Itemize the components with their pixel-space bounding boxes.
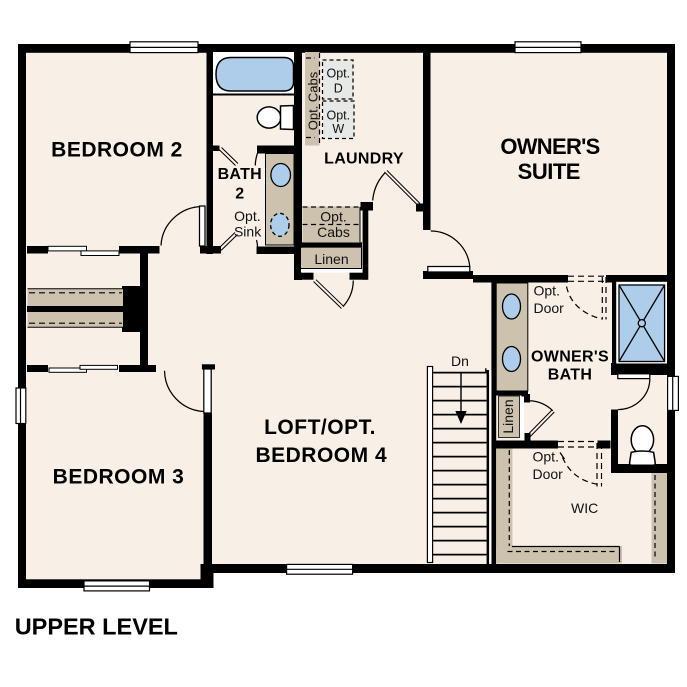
svg-text:BEDROOM 4: BEDROOM 4 xyxy=(255,444,387,467)
svg-text:UPPER LEVEL: UPPER LEVEL xyxy=(15,613,178,639)
svg-text:SUITE: SUITE xyxy=(518,159,580,184)
svg-text:OWNER'S: OWNER'S xyxy=(500,134,599,159)
svg-text:Opt. Cabs: Opt. Cabs xyxy=(306,71,321,130)
svg-text:D: D xyxy=(334,82,343,96)
svg-text:W: W xyxy=(332,122,344,136)
svg-text:LAUNDRY: LAUNDRY xyxy=(324,151,404,168)
svg-text:Door: Door xyxy=(533,466,564,482)
svg-text:Opt.: Opt. xyxy=(326,67,350,81)
svg-text:Door: Door xyxy=(534,300,565,316)
svg-text:BATH: BATH xyxy=(548,367,592,384)
svg-text:BEDROOM 2: BEDROOM 2 xyxy=(51,139,183,162)
svg-text:BATH: BATH xyxy=(218,166,262,183)
svg-text:Linen: Linen xyxy=(314,251,348,267)
svg-text:2: 2 xyxy=(235,186,244,203)
svg-text:Opt.: Opt. xyxy=(234,208,260,224)
svg-text:Opt.: Opt. xyxy=(534,283,560,299)
svg-text:Opt.: Opt. xyxy=(320,209,346,225)
svg-text:Cabs: Cabs xyxy=(317,224,350,240)
svg-text:Sink: Sink xyxy=(234,223,262,239)
svg-text:Linen: Linen xyxy=(500,399,516,433)
svg-text:OWNER'S: OWNER'S xyxy=(531,349,609,366)
svg-text:WIC: WIC xyxy=(571,500,598,516)
svg-text:Dn: Dn xyxy=(451,353,469,369)
svg-text:BEDROOM 3: BEDROOM 3 xyxy=(53,466,185,489)
svg-text:Opt.: Opt. xyxy=(533,449,559,465)
svg-text:Opt.: Opt. xyxy=(326,109,350,123)
svg-text:LOFT/OPT.: LOFT/OPT. xyxy=(264,416,376,439)
